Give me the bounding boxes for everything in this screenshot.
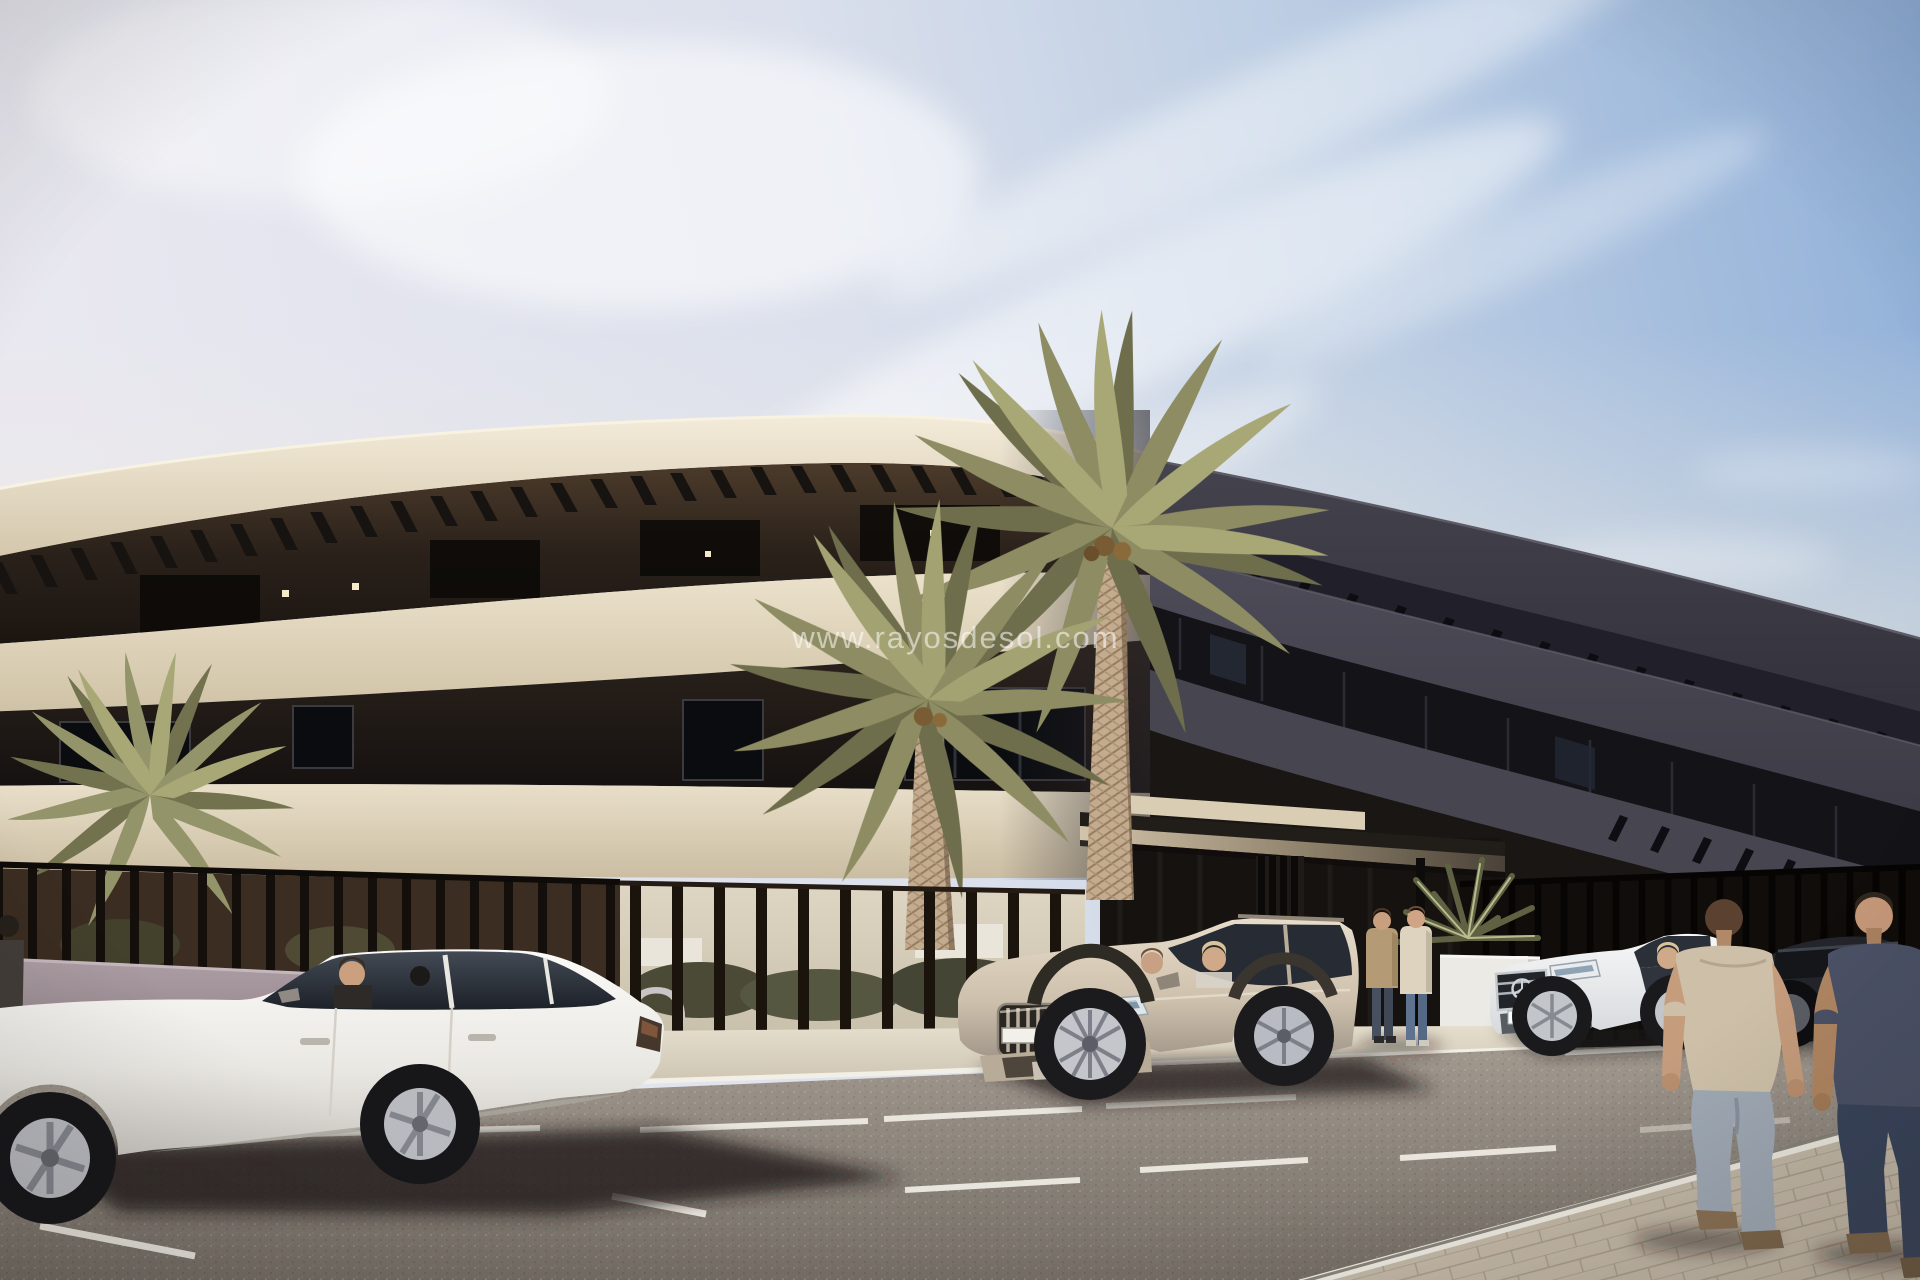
watermark-text: www.rayosdesol.com — [791, 620, 1119, 655]
render-canvas: TO — [0, 0, 1920, 1280]
architectural-render: TO — [0, 0, 1920, 1280]
